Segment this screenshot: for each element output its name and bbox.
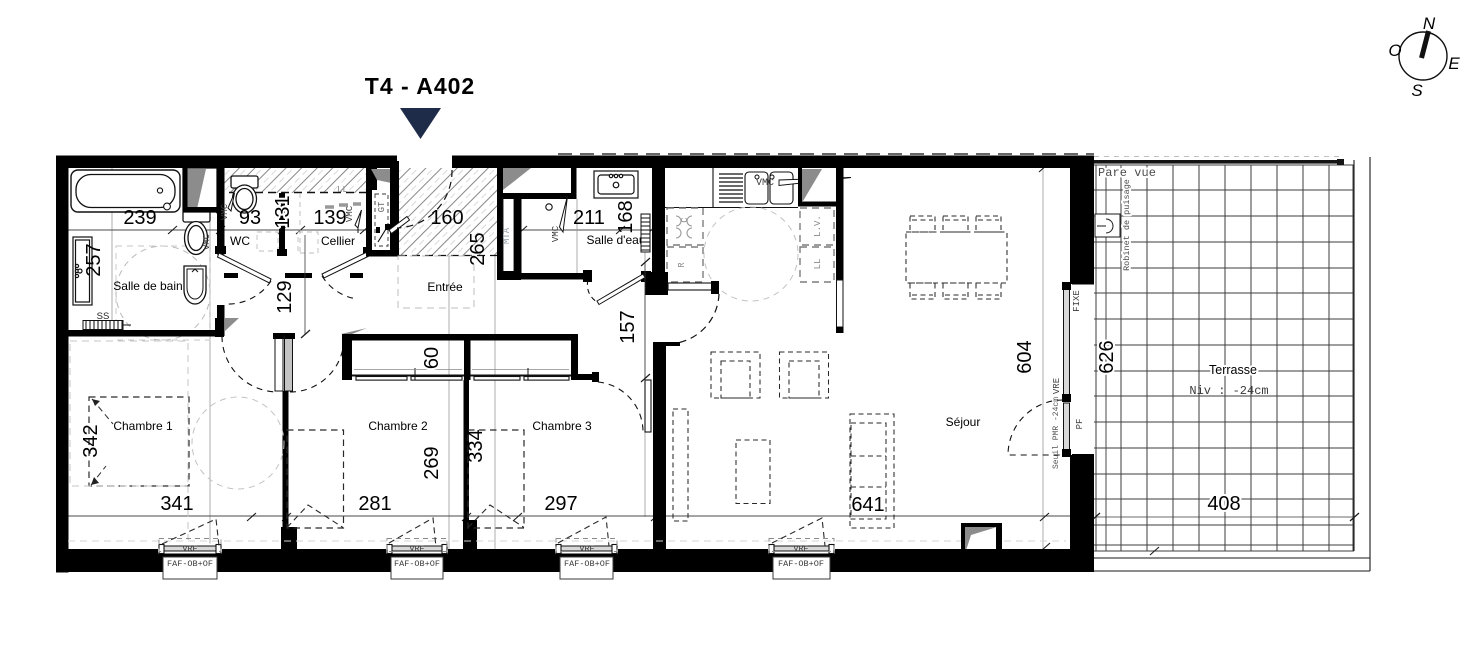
svg-text:VRE: VRE xyxy=(182,544,197,554)
svg-text:S: S xyxy=(1411,81,1423,100)
svg-text:257: 257 xyxy=(83,243,105,276)
svg-text:PF: PF xyxy=(1075,419,1085,430)
svg-text:Niv : -24cm: Niv : -24cm xyxy=(1189,384,1268,398)
svg-text:265: 265 xyxy=(467,232,489,265)
svg-text:Terrasse: Terrasse xyxy=(1209,363,1257,377)
svg-text:O: O xyxy=(1388,41,1401,60)
svg-text:FAF-OB+OF: FAF-OB+OF xyxy=(778,559,824,569)
svg-text:Entrée: Entrée xyxy=(427,280,463,294)
svg-text:E: E xyxy=(1448,54,1460,73)
svg-text:FAF-OB+OF: FAF-OB+OF xyxy=(394,559,440,569)
svg-text:Robinet de puisage: Robinet de puisage xyxy=(1122,179,1132,271)
svg-text:129: 129 xyxy=(274,280,296,313)
svg-text:Salle de bain: Salle de bain xyxy=(113,279,182,293)
svg-text:Cellier: Cellier xyxy=(321,234,355,248)
svg-text:641: 641 xyxy=(851,494,884,516)
svg-text:LL: LL xyxy=(337,185,348,195)
svg-text:269: 269 xyxy=(421,446,443,479)
svg-text:T4 - A402: T4 - A402 xyxy=(365,73,475,99)
svg-text:FAF-OB+OF: FAF-OB+OF xyxy=(564,559,610,569)
svg-text:211: 211 xyxy=(573,207,605,229)
svg-text:Pare vue: Pare vue xyxy=(1098,166,1156,180)
svg-text:Chambre 1: Chambre 1 xyxy=(113,419,173,433)
svg-text:408: 408 xyxy=(1207,493,1240,515)
svg-text:341: 341 xyxy=(160,493,193,515)
svg-text:L.V.: L.V. xyxy=(813,215,823,237)
svg-text:C: C xyxy=(680,217,690,223)
svg-text:GT: GT xyxy=(377,201,387,212)
svg-text:160: 160 xyxy=(430,207,463,229)
svg-text:VMC: VMC xyxy=(756,178,774,189)
svg-text:FAF-OB+OF: FAF-OB+OF xyxy=(167,559,213,569)
svg-text:R: R xyxy=(677,262,687,268)
svg-text:FIXE: FIXE xyxy=(1072,290,1082,312)
svg-text:297: 297 xyxy=(544,493,577,515)
svg-text:342: 342 xyxy=(80,424,102,457)
svg-text:SS: SS xyxy=(97,311,110,322)
svg-text:N: N xyxy=(1423,14,1436,33)
svg-text:Seuil PMR -24cm: Seuil PMR -24cm xyxy=(1052,397,1061,469)
svg-text:VMC: VMC xyxy=(202,233,212,250)
svg-text:WC: WC xyxy=(230,234,250,248)
svg-text:VRE: VRE xyxy=(409,544,424,554)
svg-text:VRE: VRE xyxy=(579,544,594,554)
svg-text:93: 93 xyxy=(239,207,261,229)
svg-text:334: 334 xyxy=(465,429,487,462)
svg-text:VMC: VMC xyxy=(551,225,561,242)
svg-text:Séjour: Séjour xyxy=(946,415,981,429)
svg-text:157: 157 xyxy=(617,310,639,343)
svg-text:604: 604 xyxy=(1014,340,1036,373)
svg-text:131: 131 xyxy=(272,195,294,228)
svg-text:VRE: VRE xyxy=(793,544,808,554)
svg-text:Chambre 3: Chambre 3 xyxy=(532,419,592,433)
svg-text:Salle d'eau: Salle d'eau xyxy=(586,233,645,247)
svg-text:139: 139 xyxy=(313,207,346,229)
svg-text:239: 239 xyxy=(123,207,156,229)
svg-text:VRE: VRE xyxy=(1052,378,1062,394)
svg-text:281: 281 xyxy=(358,493,391,515)
svg-text:168: 168 xyxy=(615,200,637,233)
svg-text:60: 60 xyxy=(421,347,443,369)
svg-text:MTA: MTA xyxy=(502,227,512,244)
svg-text:VMC: VMC xyxy=(220,203,230,220)
svg-text:LL: LL xyxy=(813,259,823,270)
svg-text:Chambre 2: Chambre 2 xyxy=(368,419,428,433)
svg-text:626: 626 xyxy=(1096,340,1118,373)
